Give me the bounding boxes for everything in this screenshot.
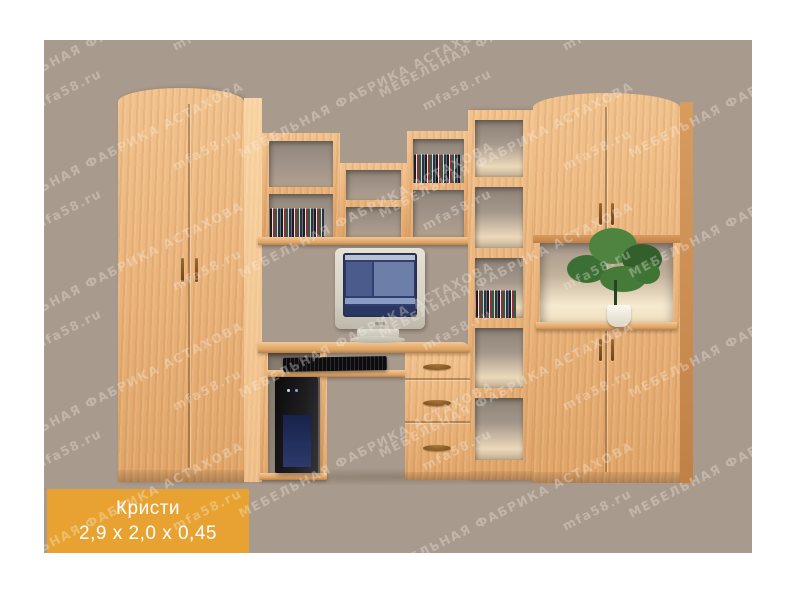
pc-power-light — [287, 389, 290, 392]
watermark-text: mfa58.ru — [420, 66, 495, 114]
shelf-opening — [413, 190, 464, 237]
screen-lower-area — [345, 306, 415, 315]
cabinet-upper-door-divider — [605, 107, 607, 235]
watermark-text: mfa58.ru — [560, 40, 635, 53]
cabinet-upper-handle-right — [611, 203, 614, 225]
drawer-unit-plinth — [405, 472, 470, 480]
shelf-opening — [346, 207, 401, 237]
product-dimensions: 2,9 x 2,0 x 0,45 — [47, 521, 249, 546]
watermark-text: mfa58.ru — [560, 486, 635, 534]
wardrobe-door-divider — [188, 104, 190, 468]
cd-row — [414, 154, 460, 183]
rack-opening — [475, 398, 523, 460]
wardrobe-handle-right — [195, 258, 198, 282]
cabinet-upper-handle-left — [599, 203, 602, 225]
wardrobe-plinth — [118, 470, 244, 482]
monitor-logo — [375, 322, 385, 325]
monitor-base — [351, 336, 405, 343]
cabinet-plinth — [533, 472, 680, 483]
pc-tower — [275, 377, 318, 473]
watermark-text: МЕБЕЛЬНАЯ ФАБРИКА АСТАХОВА — [376, 40, 636, 101]
product-label: Кристи 2,9 x 2,0 x 0,45 — [47, 489, 249, 553]
product-photo: Кристи 2,9 x 2,0 x 0,45 МЕБЕЛЬНАЯ ФАБРИК… — [44, 40, 752, 553]
rack-opening — [475, 258, 523, 318]
cd-row — [270, 208, 324, 237]
plant-foliage — [634, 262, 660, 284]
cabinet-lower-handle-right — [611, 339, 614, 361]
watermark-text: mfa58.ru — [44, 426, 104, 474]
cabinet-lower-handle-left — [599, 339, 602, 361]
desk-bay-floor — [260, 473, 327, 480]
product-name: Кристи — [47, 496, 249, 521]
screen-left-pane — [346, 262, 372, 296]
cabinet-niche-floor — [536, 322, 677, 330]
wardrobe-handle-left — [181, 258, 184, 282]
screen-right-pane — [374, 262, 414, 296]
shelf-opening — [269, 141, 333, 187]
pc-hdd-light — [295, 389, 298, 392]
plant-pot — [607, 305, 631, 327]
wardrobe — [118, 88, 244, 482]
cd-row — [476, 290, 516, 318]
rack-opening — [475, 187, 523, 248]
drawer-handle — [423, 364, 451, 370]
rack-opening — [475, 328, 523, 388]
rack-opening — [475, 120, 523, 177]
cabinet-lower-door-divider — [605, 331, 607, 472]
monitor-screen — [343, 253, 417, 317]
pc-tower-front-panel — [283, 415, 311, 467]
cabinet-side-panel — [680, 102, 693, 483]
crt-monitor — [335, 248, 425, 329]
drawer-unit — [405, 353, 470, 480]
shelf-opening — [413, 139, 464, 183]
drawer-gap — [405, 421, 470, 423]
desk-side-panel — [260, 353, 268, 480]
drawer-handle — [423, 445, 451, 451]
plant-stem — [614, 280, 617, 306]
rack-plinth — [468, 471, 533, 480]
watermark-text: mfa58.ru — [170, 40, 245, 53]
shelf-opening — [269, 194, 333, 237]
shelf-opening — [346, 170, 401, 200]
keyboard — [283, 356, 387, 372]
wall-shelf-left — [262, 133, 340, 237]
wall-shelf-middle — [340, 163, 407, 237]
wall-shelf-base-board — [258, 237, 470, 245]
screen-toolbar-band — [345, 298, 415, 304]
computer-desk-top — [258, 342, 470, 353]
watermark-text: mfa58.ru — [44, 186, 104, 234]
watermark-text: mfa58.ru — [44, 306, 104, 354]
screen-titlebar — [345, 255, 415, 260]
drawer-handle — [423, 400, 451, 406]
wall-shelf-right — [407, 131, 470, 237]
cd-rack — [468, 110, 533, 480]
drawer-gap — [405, 378, 470, 380]
watermark-text: mfa58.ru — [44, 66, 104, 114]
